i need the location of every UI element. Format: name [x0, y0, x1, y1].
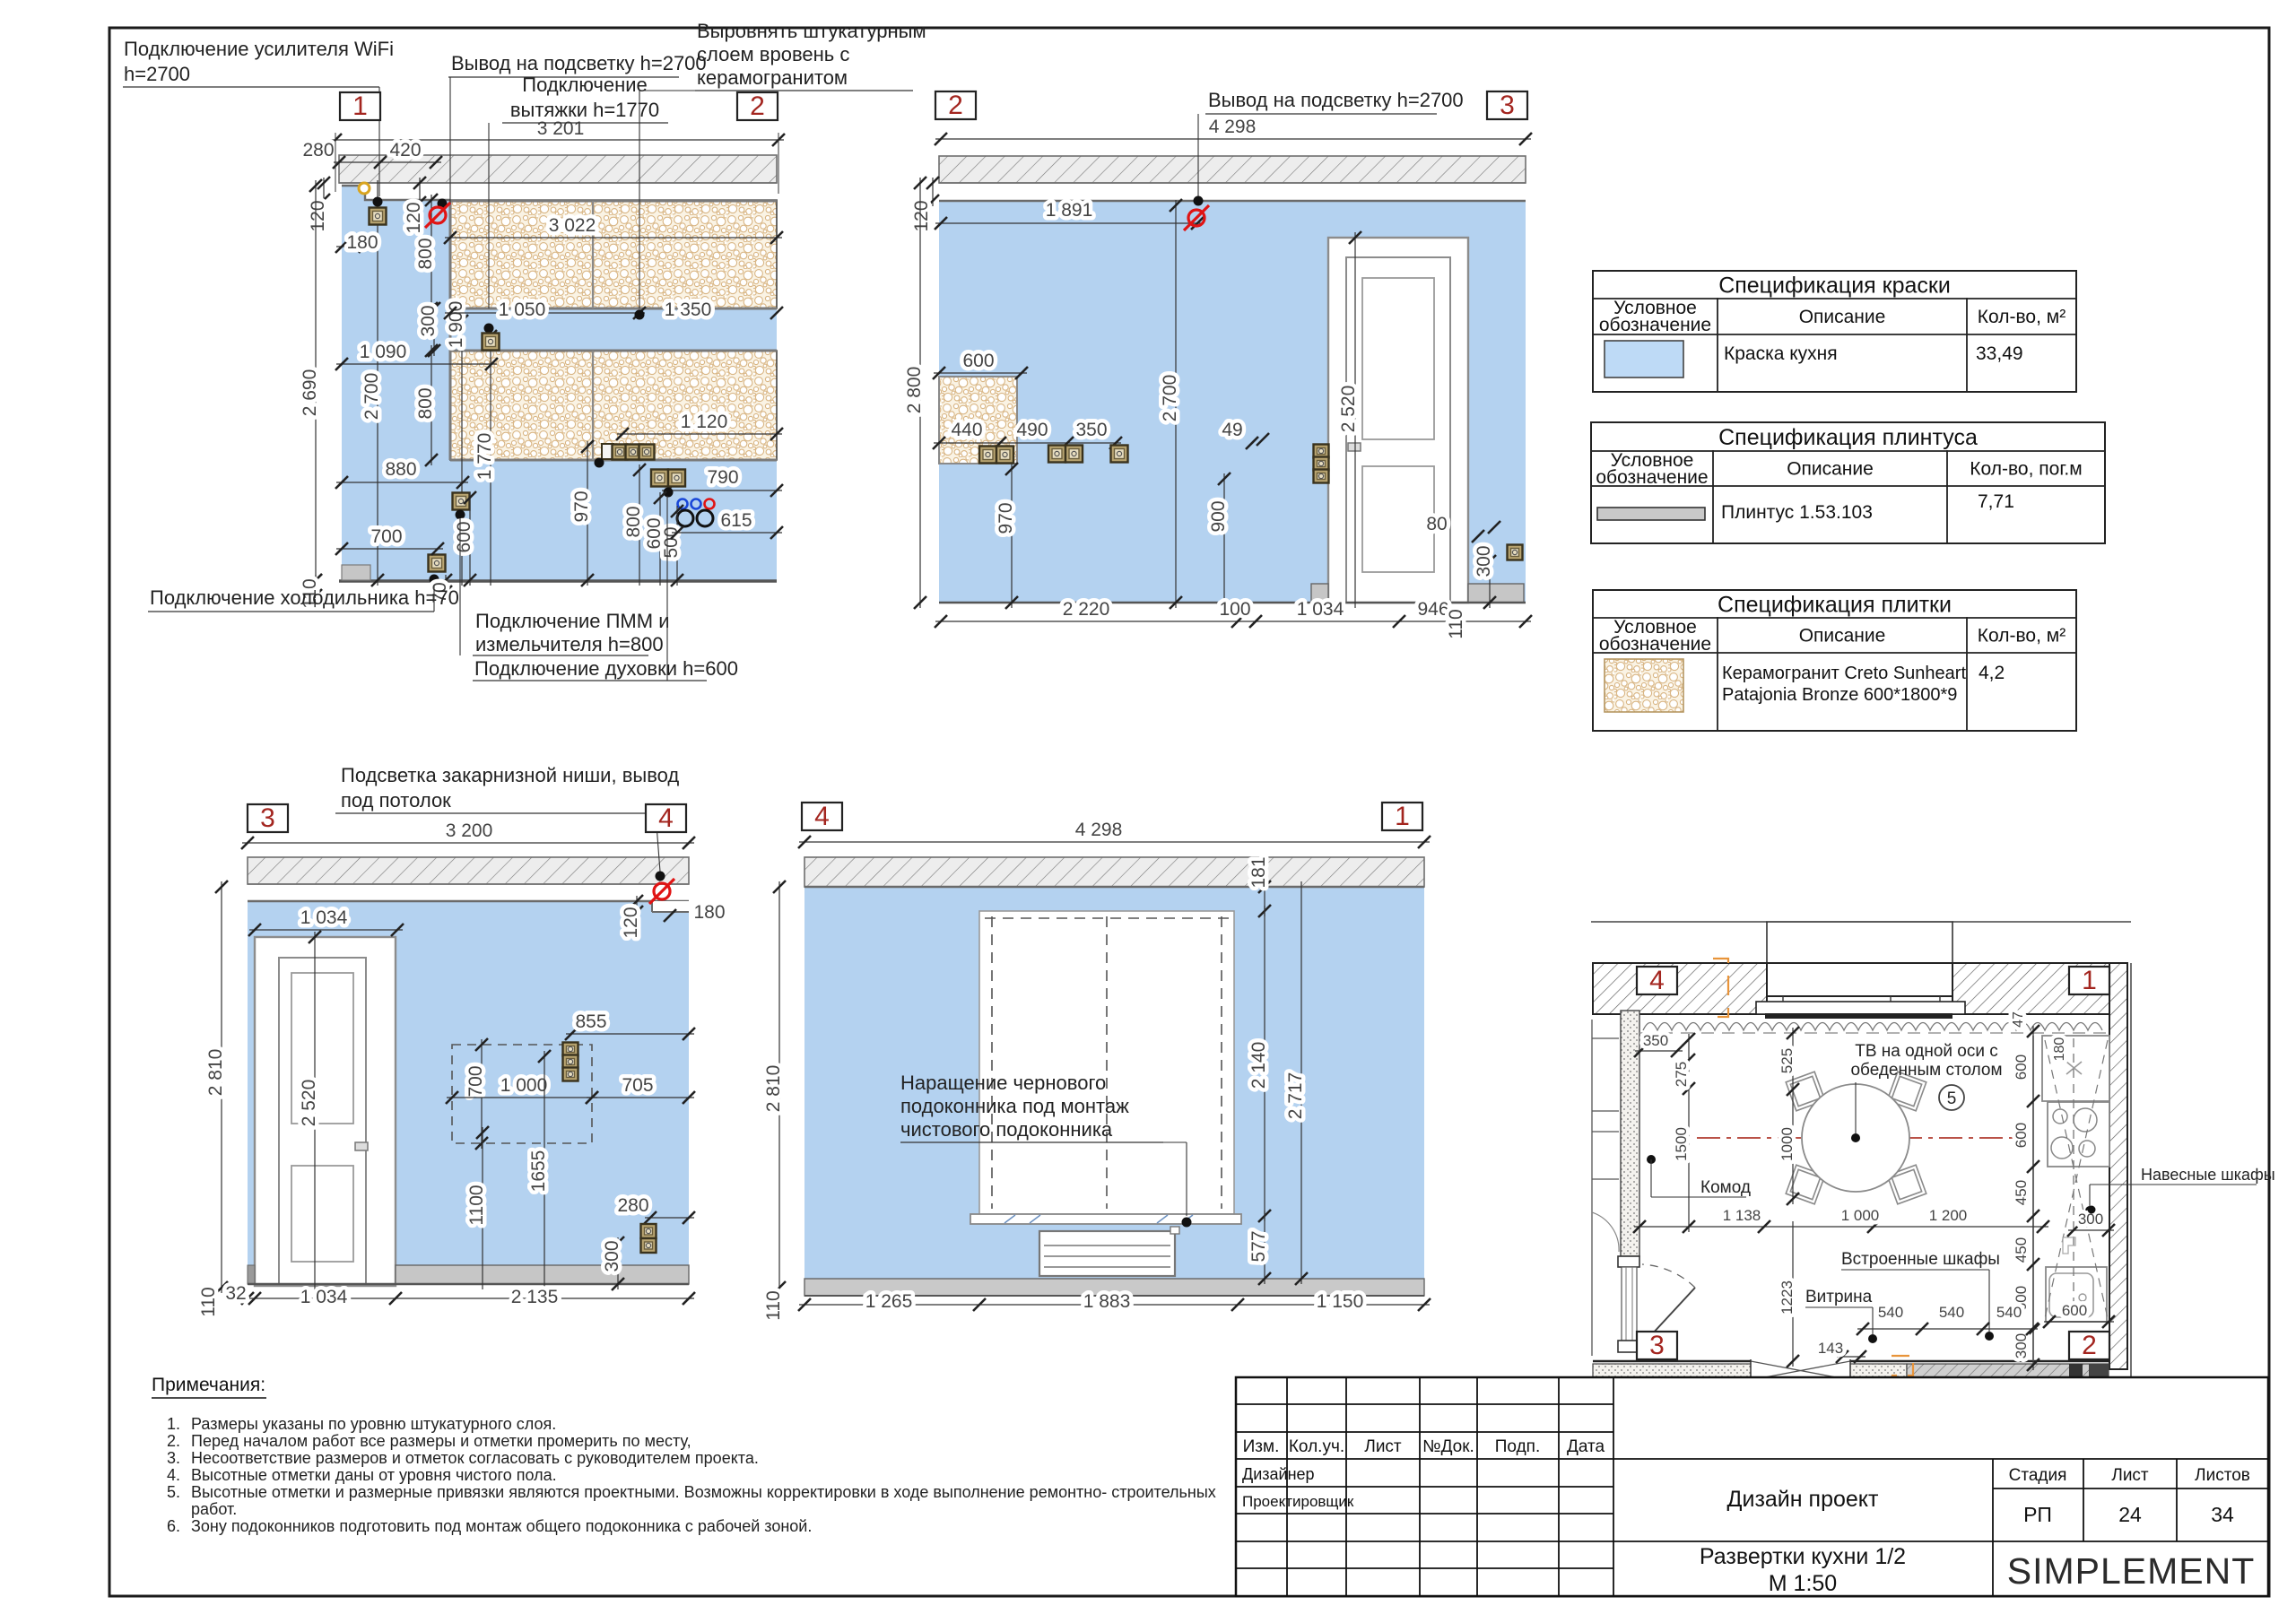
- svg-text:Подключение усилителя WiFi: Подключение усилителя WiFi: [124, 38, 394, 60]
- svg-text:М 1:50: М 1:50: [1769, 1571, 1837, 1596]
- svg-text:946: 946: [1417, 599, 1448, 620]
- svg-text:280: 280: [302, 140, 334, 161]
- svg-text:4: 4: [658, 803, 674, 833]
- svg-text:измельчителя h=800: измельчителя h=800: [475, 633, 664, 655]
- svg-text:1: 1: [352, 91, 368, 121]
- svg-text:Комод: Комод: [1700, 1178, 1751, 1197]
- svg-text:Навесные шкафы: Навесные шкафы: [2141, 1166, 2275, 1184]
- svg-text:180: 180: [2052, 1037, 2067, 1062]
- svg-text:Дизайнер: Дизайнер: [1242, 1465, 1315, 1483]
- svg-text:300: 300: [418, 305, 439, 336]
- svg-text:h=2700: h=2700: [124, 63, 190, 85]
- svg-text:1.: 1.: [167, 1415, 180, 1433]
- svg-text:4: 4: [814, 802, 830, 831]
- svg-text:Подключение духовки h=600: Подключение духовки h=600: [474, 657, 738, 680]
- svg-text:100: 100: [1219, 599, 1250, 620]
- svg-text:Описание: Описание: [1799, 307, 1886, 327]
- svg-text:1655: 1655: [528, 1150, 549, 1193]
- svg-text:№Док.: №Док.: [1422, 1437, 1474, 1456]
- svg-text:1 034: 1 034: [1297, 599, 1344, 620]
- svg-text:Размеры указаны по уровню штук: Размеры указаны по уровню штукатурного с…: [191, 1415, 556, 1433]
- svg-text:540: 540: [1939, 1304, 1964, 1321]
- svg-text:180: 180: [346, 232, 378, 253]
- svg-text:800: 800: [415, 387, 436, 419]
- svg-text:Изм.: Изм.: [1243, 1437, 1280, 1456]
- svg-text:2.: 2.: [167, 1432, 180, 1450]
- svg-text:SIMPLEMENT: SIMPLEMENT: [2007, 1550, 2256, 1592]
- svg-text:110: 110: [763, 1290, 784, 1320]
- svg-text:1 770: 1 770: [474, 433, 495, 481]
- svg-text:34: 34: [2211, 1503, 2234, 1526]
- svg-text:1 034: 1 034: [300, 1287, 348, 1307]
- svg-text:32: 32: [225, 1283, 246, 1304]
- svg-text:слоем вровень с: слоем вровень с: [697, 43, 849, 65]
- svg-text:2 220: 2 220: [1063, 599, 1110, 620]
- svg-text:2 520: 2 520: [299, 1080, 319, 1127]
- svg-text:600: 600: [2013, 1123, 2030, 1148]
- svg-text:540: 540: [1878, 1304, 1903, 1321]
- svg-text:1 090: 1 090: [360, 342, 407, 362]
- svg-text:7,71: 7,71: [1978, 491, 2014, 512]
- svg-text:3 022: 3 022: [549, 215, 596, 236]
- svg-text:970: 970: [996, 502, 1016, 534]
- svg-text:Patajonia Bronze 600*1800*9: Patajonia Bronze 600*1800*9: [1722, 685, 1957, 705]
- svg-text:3: 3: [260, 803, 275, 833]
- svg-text:Подп.: Подп.: [1495, 1437, 1540, 1456]
- svg-text:1500: 1500: [1673, 1127, 1690, 1161]
- svg-text:2 140: 2 140: [1248, 1042, 1269, 1089]
- svg-text:Дизайн проект: Дизайн проект: [1727, 1487, 1879, 1512]
- svg-text:1 883: 1 883: [1083, 1291, 1131, 1312]
- svg-text:обеденным столом: обеденным столом: [1850, 1061, 2002, 1080]
- svg-text:49: 49: [1222, 420, 1242, 440]
- svg-text:110: 110: [1446, 609, 1466, 638]
- svg-text:600: 600: [2062, 1302, 2087, 1319]
- svg-text:Кол.уч.: Кол.уч.: [1289, 1437, 1344, 1456]
- svg-text:Развертки кухни 1/2: Развертки кухни 1/2: [1700, 1544, 1906, 1569]
- svg-text:181: 181: [1248, 856, 1269, 888]
- svg-text:РП: РП: [2023, 1503, 2052, 1526]
- svg-text:Описание: Описание: [1799, 626, 1886, 647]
- svg-text:120: 120: [404, 202, 424, 233]
- svg-text:1: 1: [1395, 802, 1410, 831]
- svg-text:790: 790: [707, 467, 738, 488]
- svg-text:600: 600: [962, 351, 994, 371]
- svg-text:Краска кухня: Краска кухня: [1724, 343, 1838, 364]
- svg-text:600: 600: [454, 521, 474, 552]
- svg-text:4,2: 4,2: [1979, 663, 2005, 683]
- svg-text:Витрина: Витрина: [1805, 1288, 1873, 1306]
- svg-text:3: 3: [1649, 1331, 1665, 1360]
- svg-text:1 150: 1 150: [1317, 1291, 1364, 1312]
- svg-text:700: 700: [465, 1065, 486, 1097]
- svg-text:1 265: 1 265: [865, 1291, 913, 1312]
- svg-text:2 810: 2 810: [205, 1049, 226, 1097]
- svg-text:4 298: 4 298: [1209, 117, 1257, 137]
- svg-text:Подключение холодильника h=70: Подключение холодильника h=70: [150, 586, 459, 609]
- svg-text:600: 600: [2013, 1055, 2030, 1080]
- svg-text:вытяжки h=1770: вытяжки h=1770: [510, 99, 659, 121]
- svg-text:1 120: 1 120: [681, 412, 728, 432]
- svg-text:ТВ на одной оси с: ТВ на одной оси с: [1855, 1042, 1998, 1061]
- svg-text:800: 800: [415, 238, 436, 269]
- svg-text:300: 300: [1474, 545, 1494, 577]
- svg-text:2 810: 2 810: [763, 1065, 784, 1113]
- svg-text:обозначение: обозначение: [1599, 634, 1711, 655]
- svg-text:900: 900: [1208, 500, 1229, 532]
- svg-text:подоконника под монтаж: подоконника под монтаж: [900, 1095, 1129, 1117]
- svg-text:Спецификация плитки: Спецификация плитки: [1718, 593, 1952, 618]
- svg-text:490: 490: [1016, 420, 1048, 440]
- svg-text:1: 1: [2082, 966, 2097, 995]
- svg-text:Подключение: Подключение: [522, 74, 648, 96]
- svg-text:540: 540: [1996, 1304, 2022, 1321]
- svg-text:2 800: 2 800: [904, 367, 925, 414]
- svg-text:Спецификация плинтуса: Спецификация плинтуса: [1718, 425, 1978, 450]
- svg-text:1 138: 1 138: [1723, 1207, 1761, 1224]
- svg-text:1100: 1100: [466, 1185, 487, 1225]
- svg-text:1 000: 1 000: [1841, 1207, 1880, 1224]
- svg-text:110: 110: [198, 1287, 219, 1316]
- svg-text:855: 855: [575, 1011, 606, 1032]
- svg-text:Подключение ПММ и: Подключение ПММ и: [475, 610, 669, 632]
- svg-text:Подсветка закарнизной ниши, вы: Подсветка закарнизной ниши, вывод: [341, 764, 679, 786]
- svg-text:450: 450: [2013, 1237, 2030, 1263]
- svg-text:Примечания:: Примечания:: [152, 1375, 265, 1395]
- svg-text:под потолок: под потолок: [341, 789, 451, 811]
- svg-text:2 520: 2 520: [1338, 386, 1359, 433]
- svg-text:Проектировщик: Проектировщик: [1242, 1493, 1354, 1510]
- svg-text:2: 2: [2082, 1331, 2097, 1360]
- svg-text:3: 3: [1500, 91, 1515, 120]
- svg-text:700: 700: [370, 526, 402, 547]
- svg-text:Кол-во, м²: Кол-во, м²: [1978, 307, 2066, 327]
- svg-text:Керамогранит Creto Sunheart: Керамогранит Creto Sunheart: [1722, 664, 1966, 683]
- svg-text:4 298: 4 298: [1075, 820, 1123, 840]
- svg-text:1223: 1223: [1779, 1280, 1796, 1315]
- svg-text:работ.: работ.: [191, 1500, 237, 1518]
- svg-text:33,49: 33,49: [1976, 343, 2023, 364]
- svg-text:2 700: 2 700: [1160, 375, 1180, 422]
- svg-text:Описание: Описание: [1787, 459, 1874, 480]
- svg-text:420: 420: [389, 140, 421, 161]
- svg-text:3 200: 3 200: [446, 820, 493, 841]
- svg-text:2 700: 2 700: [361, 373, 382, 421]
- svg-text:6.: 6.: [167, 1517, 180, 1535]
- svg-text:Дата: Дата: [1567, 1437, 1605, 1456]
- svg-text:275: 275: [1673, 1062, 1690, 1087]
- svg-text:2 717: 2 717: [1285, 1072, 1306, 1120]
- svg-text:24: 24: [2118, 1503, 2142, 1526]
- svg-text:обозначение: обозначение: [1596, 467, 1708, 488]
- svg-text:300: 300: [602, 1240, 622, 1271]
- svg-text:2 690: 2 690: [300, 369, 320, 417]
- svg-text:обозначение: обозначение: [1599, 315, 1711, 335]
- svg-text:2: 2: [750, 91, 765, 121]
- svg-text:Кол-во, пог.м: Кол-во, пог.м: [1970, 459, 2082, 480]
- svg-text:1 350: 1 350: [665, 299, 712, 320]
- svg-text:Спецификация краски: Спецификация краски: [1718, 273, 1951, 299]
- svg-text:1 000: 1 000: [500, 1075, 548, 1096]
- svg-text:Зону подоконников подготовить: Зону подоконников подготовить под монтаж…: [191, 1517, 812, 1535]
- svg-text:615: 615: [720, 510, 752, 531]
- svg-text:Несоответствие размеров и отме: Несоответствие размеров и отметок соглас…: [191, 1449, 759, 1467]
- svg-text:4: 4: [1649, 966, 1665, 995]
- svg-text:Листов: Листов: [2195, 1466, 2250, 1485]
- svg-text:120: 120: [911, 200, 932, 231]
- svg-text:1 050: 1 050: [499, 299, 546, 320]
- svg-text:47: 47: [2011, 1011, 2026, 1028]
- svg-text:Наращение чернового: Наращение чернового: [900, 1072, 1106, 1094]
- svg-text:120: 120: [308, 200, 328, 231]
- svg-text:Перед началом работ все размер: Перед началом работ все размеры и отметк…: [191, 1432, 691, 1450]
- svg-text:2: 2: [948, 91, 963, 120]
- svg-text:Плинтус 1.53.103: Плинтус 1.53.103: [1721, 502, 1873, 523]
- svg-text:керамогранитом: керамогранитом: [697, 66, 848, 89]
- svg-text:705: 705: [622, 1075, 653, 1096]
- svg-text:2 135: 2 135: [511, 1287, 559, 1307]
- svg-text:880: 880: [385, 459, 416, 480]
- svg-text:350: 350: [1643, 1032, 1668, 1049]
- svg-text:чистового подоконника: чистового подоконника: [900, 1118, 1113, 1141]
- svg-text:Вывод на подсветку h=2700: Вывод на подсветку h=2700: [1208, 89, 1464, 111]
- svg-text:1 034: 1 034: [300, 907, 348, 928]
- svg-text:970: 970: [571, 490, 592, 522]
- svg-text:1000: 1000: [1779, 1127, 1796, 1161]
- svg-text:525: 525: [1779, 1048, 1796, 1073]
- svg-text:Встроенные шкафы: Встроенные шкафы: [1841, 1250, 2000, 1269]
- svg-text:Кол-во, м²: Кол-во, м²: [1978, 626, 2066, 647]
- svg-text:577: 577: [1248, 1230, 1269, 1262]
- svg-text:800: 800: [623, 506, 644, 537]
- svg-text:440: 440: [951, 420, 982, 440]
- svg-text:Стадия: Стадия: [2009, 1466, 2067, 1485]
- svg-text:280: 280: [617, 1195, 648, 1216]
- svg-text:5: 5: [1947, 1089, 1957, 1108]
- svg-text:Лист: Лист: [2111, 1466, 2149, 1485]
- svg-text:3.: 3.: [167, 1449, 180, 1467]
- svg-text:1 200: 1 200: [1929, 1207, 1968, 1224]
- svg-text:143: 143: [1818, 1340, 1843, 1357]
- svg-text:450: 450: [2013, 1180, 2030, 1205]
- svg-text:300: 300: [2013, 1333, 2030, 1358]
- svg-text:Лист: Лист: [1364, 1437, 1402, 1456]
- svg-text:180: 180: [693, 902, 725, 923]
- svg-text:120: 120: [621, 907, 641, 938]
- svg-text:4.: 4.: [167, 1466, 180, 1484]
- svg-text:3 201: 3 201: [537, 118, 585, 139]
- svg-text:350: 350: [1075, 420, 1107, 440]
- svg-text:Высотные отметки даны от уровн: Высотные отметки даны от уровня чистого …: [191, 1466, 557, 1484]
- svg-text:1 891: 1 891: [1046, 200, 1093, 221]
- svg-text:Вывод на подсветку h=2700: Вывод на подсветку h=2700: [451, 52, 707, 74]
- svg-text:Выровнять штукатурным: Выровнять штукатурным: [697, 20, 926, 42]
- svg-text:5.: 5.: [167, 1483, 180, 1501]
- svg-text:80: 80: [1426, 514, 1447, 534]
- svg-text:Высотные отметки и размерные п: Высотные отметки и размерные привязки яв…: [191, 1483, 1216, 1501]
